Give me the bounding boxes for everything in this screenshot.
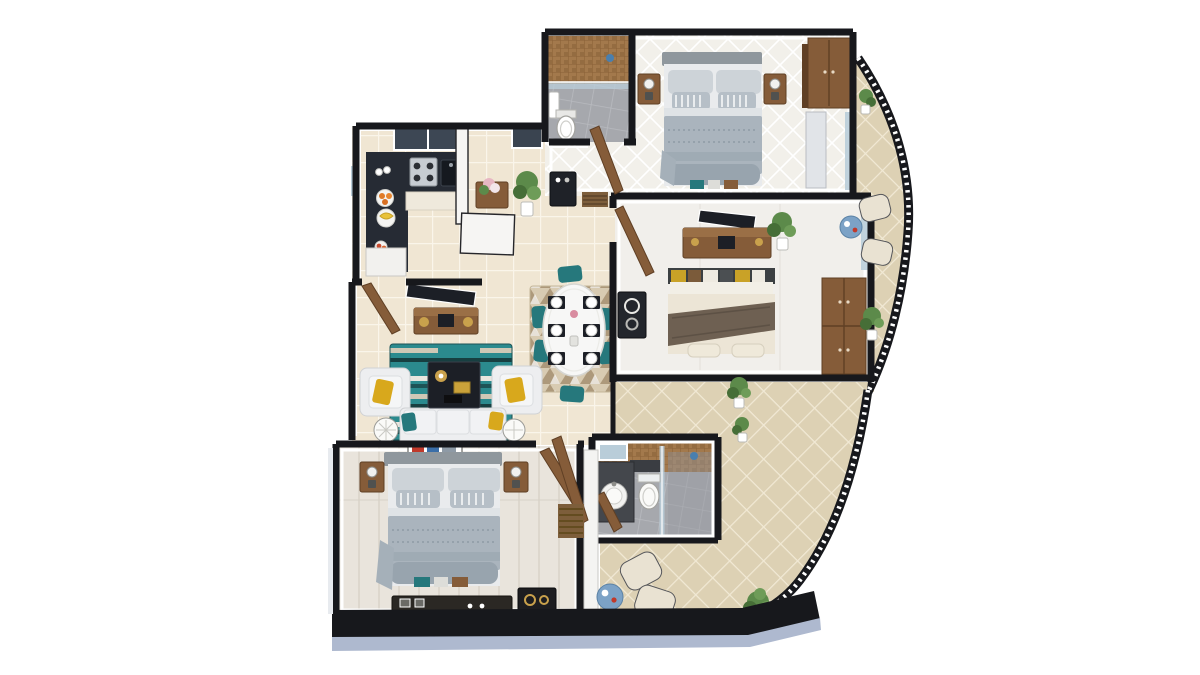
hall-console <box>550 172 576 206</box>
teal-pillow <box>401 412 417 432</box>
master-dresser <box>806 112 826 188</box>
master-bedroom <box>545 32 854 196</box>
hall-doormat <box>582 192 608 207</box>
bedroom-3 <box>331 442 580 616</box>
headboard <box>384 452 502 466</box>
table-lamp <box>770 79 780 89</box>
ensuite-glass-partition <box>547 82 632 89</box>
toilet <box>638 474 660 509</box>
speaker <box>463 317 473 327</box>
master-wardrobe <box>802 38 850 108</box>
pillow <box>448 468 500 492</box>
nightstand-left <box>360 462 384 492</box>
wood-slat-mat <box>558 504 584 538</box>
gas-stove <box>410 158 437 186</box>
bedroom3-bed <box>376 452 502 590</box>
kitchen-lower-cabinet <box>366 248 406 276</box>
living-tv-console <box>414 308 478 334</box>
table-lamp <box>644 79 654 89</box>
shower-head <box>690 452 698 460</box>
bathroom-2 <box>592 437 718 540</box>
coffee-table <box>428 362 480 408</box>
terrace-table <box>597 584 623 610</box>
table-lamp <box>511 467 521 477</box>
bedroom2-bed <box>668 268 775 357</box>
balcony-table <box>840 216 862 238</box>
pillow <box>668 70 713 94</box>
foyer-pillar-wall <box>460 213 514 255</box>
pillow <box>392 468 444 492</box>
ensuite-mosaic-wall <box>547 36 632 84</box>
bedroom2-dresser <box>618 292 646 338</box>
armchair-right <box>492 366 542 414</box>
storage-boxes <box>414 577 468 587</box>
headboard <box>662 52 762 66</box>
master-foot-boxes <box>690 180 738 189</box>
table-lamp <box>367 467 377 477</box>
nightstand-left <box>638 74 660 104</box>
bedroom2-wardrobe <box>822 278 866 374</box>
pillow-accent <box>718 92 756 110</box>
speaker <box>419 317 429 327</box>
pillow-accent <box>672 92 710 110</box>
yellow-pillow <box>488 411 504 431</box>
ensuite-bathroom <box>547 36 632 142</box>
foyer-wall <box>456 126 468 224</box>
table-flowers <box>570 310 578 318</box>
left-wall-outer-face <box>328 448 333 614</box>
mirror <box>599 444 627 460</box>
pillow-accent <box>450 490 494 508</box>
pillow <box>716 70 761 94</box>
bedroom-2 <box>615 198 870 378</box>
nightstand-right <box>504 462 528 492</box>
pillow-accent <box>396 490 440 508</box>
tv-console <box>683 228 771 258</box>
shower-head <box>606 54 614 62</box>
ensuite-toilet <box>556 110 576 140</box>
floorplan-svg <box>0 0 1200 675</box>
shower-zone <box>668 452 714 536</box>
master-bed <box>660 52 762 186</box>
books <box>454 382 470 393</box>
bedroom3-outer-wall-face <box>584 450 598 612</box>
console-table-flowers <box>476 178 508 208</box>
floorplan-canvas <box>0 0 1200 675</box>
nightstand-right <box>764 74 786 104</box>
